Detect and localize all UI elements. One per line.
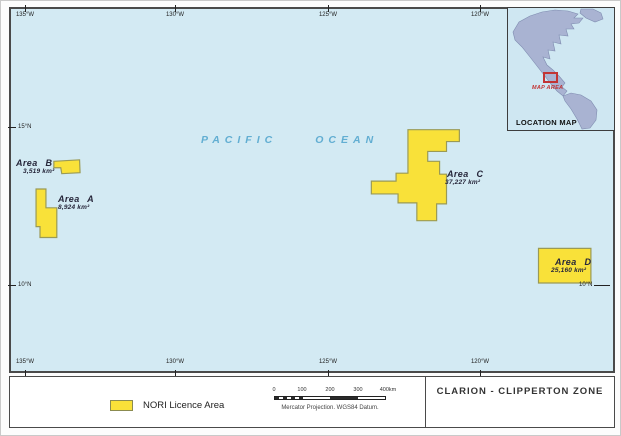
tick-label-125w-top: 125°W bbox=[312, 12, 344, 18]
scale-bar-graphic bbox=[274, 396, 386, 400]
map-area-label: MAP AREA bbox=[532, 85, 563, 91]
tick-label-125w-bottom: 125°W bbox=[312, 359, 344, 365]
scale-tick-100: 100 bbox=[297, 387, 306, 393]
tick-10n-left: 10°N bbox=[8, 282, 31, 288]
americas-continents bbox=[508, 8, 614, 130]
licence-area-a-shape bbox=[36, 189, 57, 237]
tick-mark bbox=[480, 5, 481, 12]
area-b-size: 3,519 km² bbox=[16, 168, 54, 175]
projection-caption: Mercator Projection. WGS84 Datum. bbox=[250, 405, 410, 411]
map-area-extent-box bbox=[543, 72, 558, 83]
scale-tick-0: 0 bbox=[272, 387, 275, 393]
scale-tick-400: 400km bbox=[380, 387, 397, 393]
title-panel: CLARION - CLIPPERTON ZONE bbox=[425, 376, 615, 428]
tick-label-120w-bottom: 120°W bbox=[464, 359, 496, 365]
scale-segment bbox=[358, 397, 386, 399]
tick-label-10n-left: 10°N bbox=[18, 282, 31, 288]
tick-label-135w-top: 135°W bbox=[9, 12, 41, 18]
area-d-size: 25,160 km² bbox=[551, 267, 591, 274]
area-d-label: Area D 25,160 km² bbox=[555, 257, 591, 275]
tick-label-130w-top: 130°W bbox=[159, 12, 191, 18]
tick-mark bbox=[594, 285, 610, 286]
area-c-name: Area C bbox=[447, 169, 483, 179]
area-a-name: Area A bbox=[58, 194, 94, 204]
legend-label: NORI Licence Area bbox=[143, 400, 224, 411]
licence-area-b-shape bbox=[54, 160, 80, 174]
area-c-label: Area C 37,227 km² bbox=[447, 169, 483, 187]
area-a-size: 8,924 km² bbox=[58, 204, 94, 211]
tick-label-15n-left: 15°N bbox=[18, 124, 31, 130]
tick-mark bbox=[25, 5, 26, 12]
area-b-name: Area B bbox=[16, 158, 54, 168]
tick-label-135w-bottom: 135°W bbox=[9, 359, 41, 365]
tick-mark bbox=[175, 5, 176, 12]
greenland-shape bbox=[580, 9, 603, 22]
nori-licence-swatch bbox=[110, 400, 133, 411]
scale-tick-200: 200 bbox=[325, 387, 334, 393]
tick-mark bbox=[328, 5, 329, 12]
area-b-label: Area B 3,519 km² bbox=[16, 158, 54, 176]
tick-mark bbox=[8, 127, 16, 128]
tick-label-10n-right: 10°N bbox=[579, 282, 592, 288]
tick-label-130w-bottom: 130°W bbox=[159, 359, 191, 365]
legend-panel: NORI Licence Area 0 100 200 300 400km Me… bbox=[9, 376, 426, 428]
ccz-map-figure: PACIFIC OCEAN Area B 3,519 km² Area A 8,… bbox=[0, 0, 621, 436]
pacific-ocean-label: PACIFIC OCEAN bbox=[201, 134, 378, 146]
tick-mark bbox=[8, 285, 16, 286]
scale-segment bbox=[275, 397, 303, 399]
location-map-title: LOCATION MAP bbox=[516, 118, 577, 127]
scale-segment bbox=[330, 397, 358, 399]
location-map-inset: MAP AREA LOCATION MAP bbox=[507, 7, 615, 131]
ocean-word-1: PACIFIC bbox=[201, 134, 277, 146]
tick-label-120w-top: 120°W bbox=[464, 12, 496, 18]
legend-row: NORI Licence Area bbox=[110, 400, 224, 411]
zone-title: CLARION - CLIPPERTON ZONE bbox=[426, 386, 614, 397]
area-c-size: 37,227 km² bbox=[445, 179, 483, 186]
scale-segment bbox=[303, 397, 331, 399]
scale-tick-300: 300 bbox=[353, 387, 362, 393]
ocean-word-2: OCEAN bbox=[315, 134, 378, 146]
north-america-shape bbox=[513, 10, 583, 96]
tick-10n-right: 10°N bbox=[579, 282, 610, 288]
area-a-label: Area A 8,924 km² bbox=[58, 194, 94, 212]
area-d-name: Area D bbox=[555, 257, 591, 267]
tick-15n-left: 15°N bbox=[8, 124, 31, 130]
